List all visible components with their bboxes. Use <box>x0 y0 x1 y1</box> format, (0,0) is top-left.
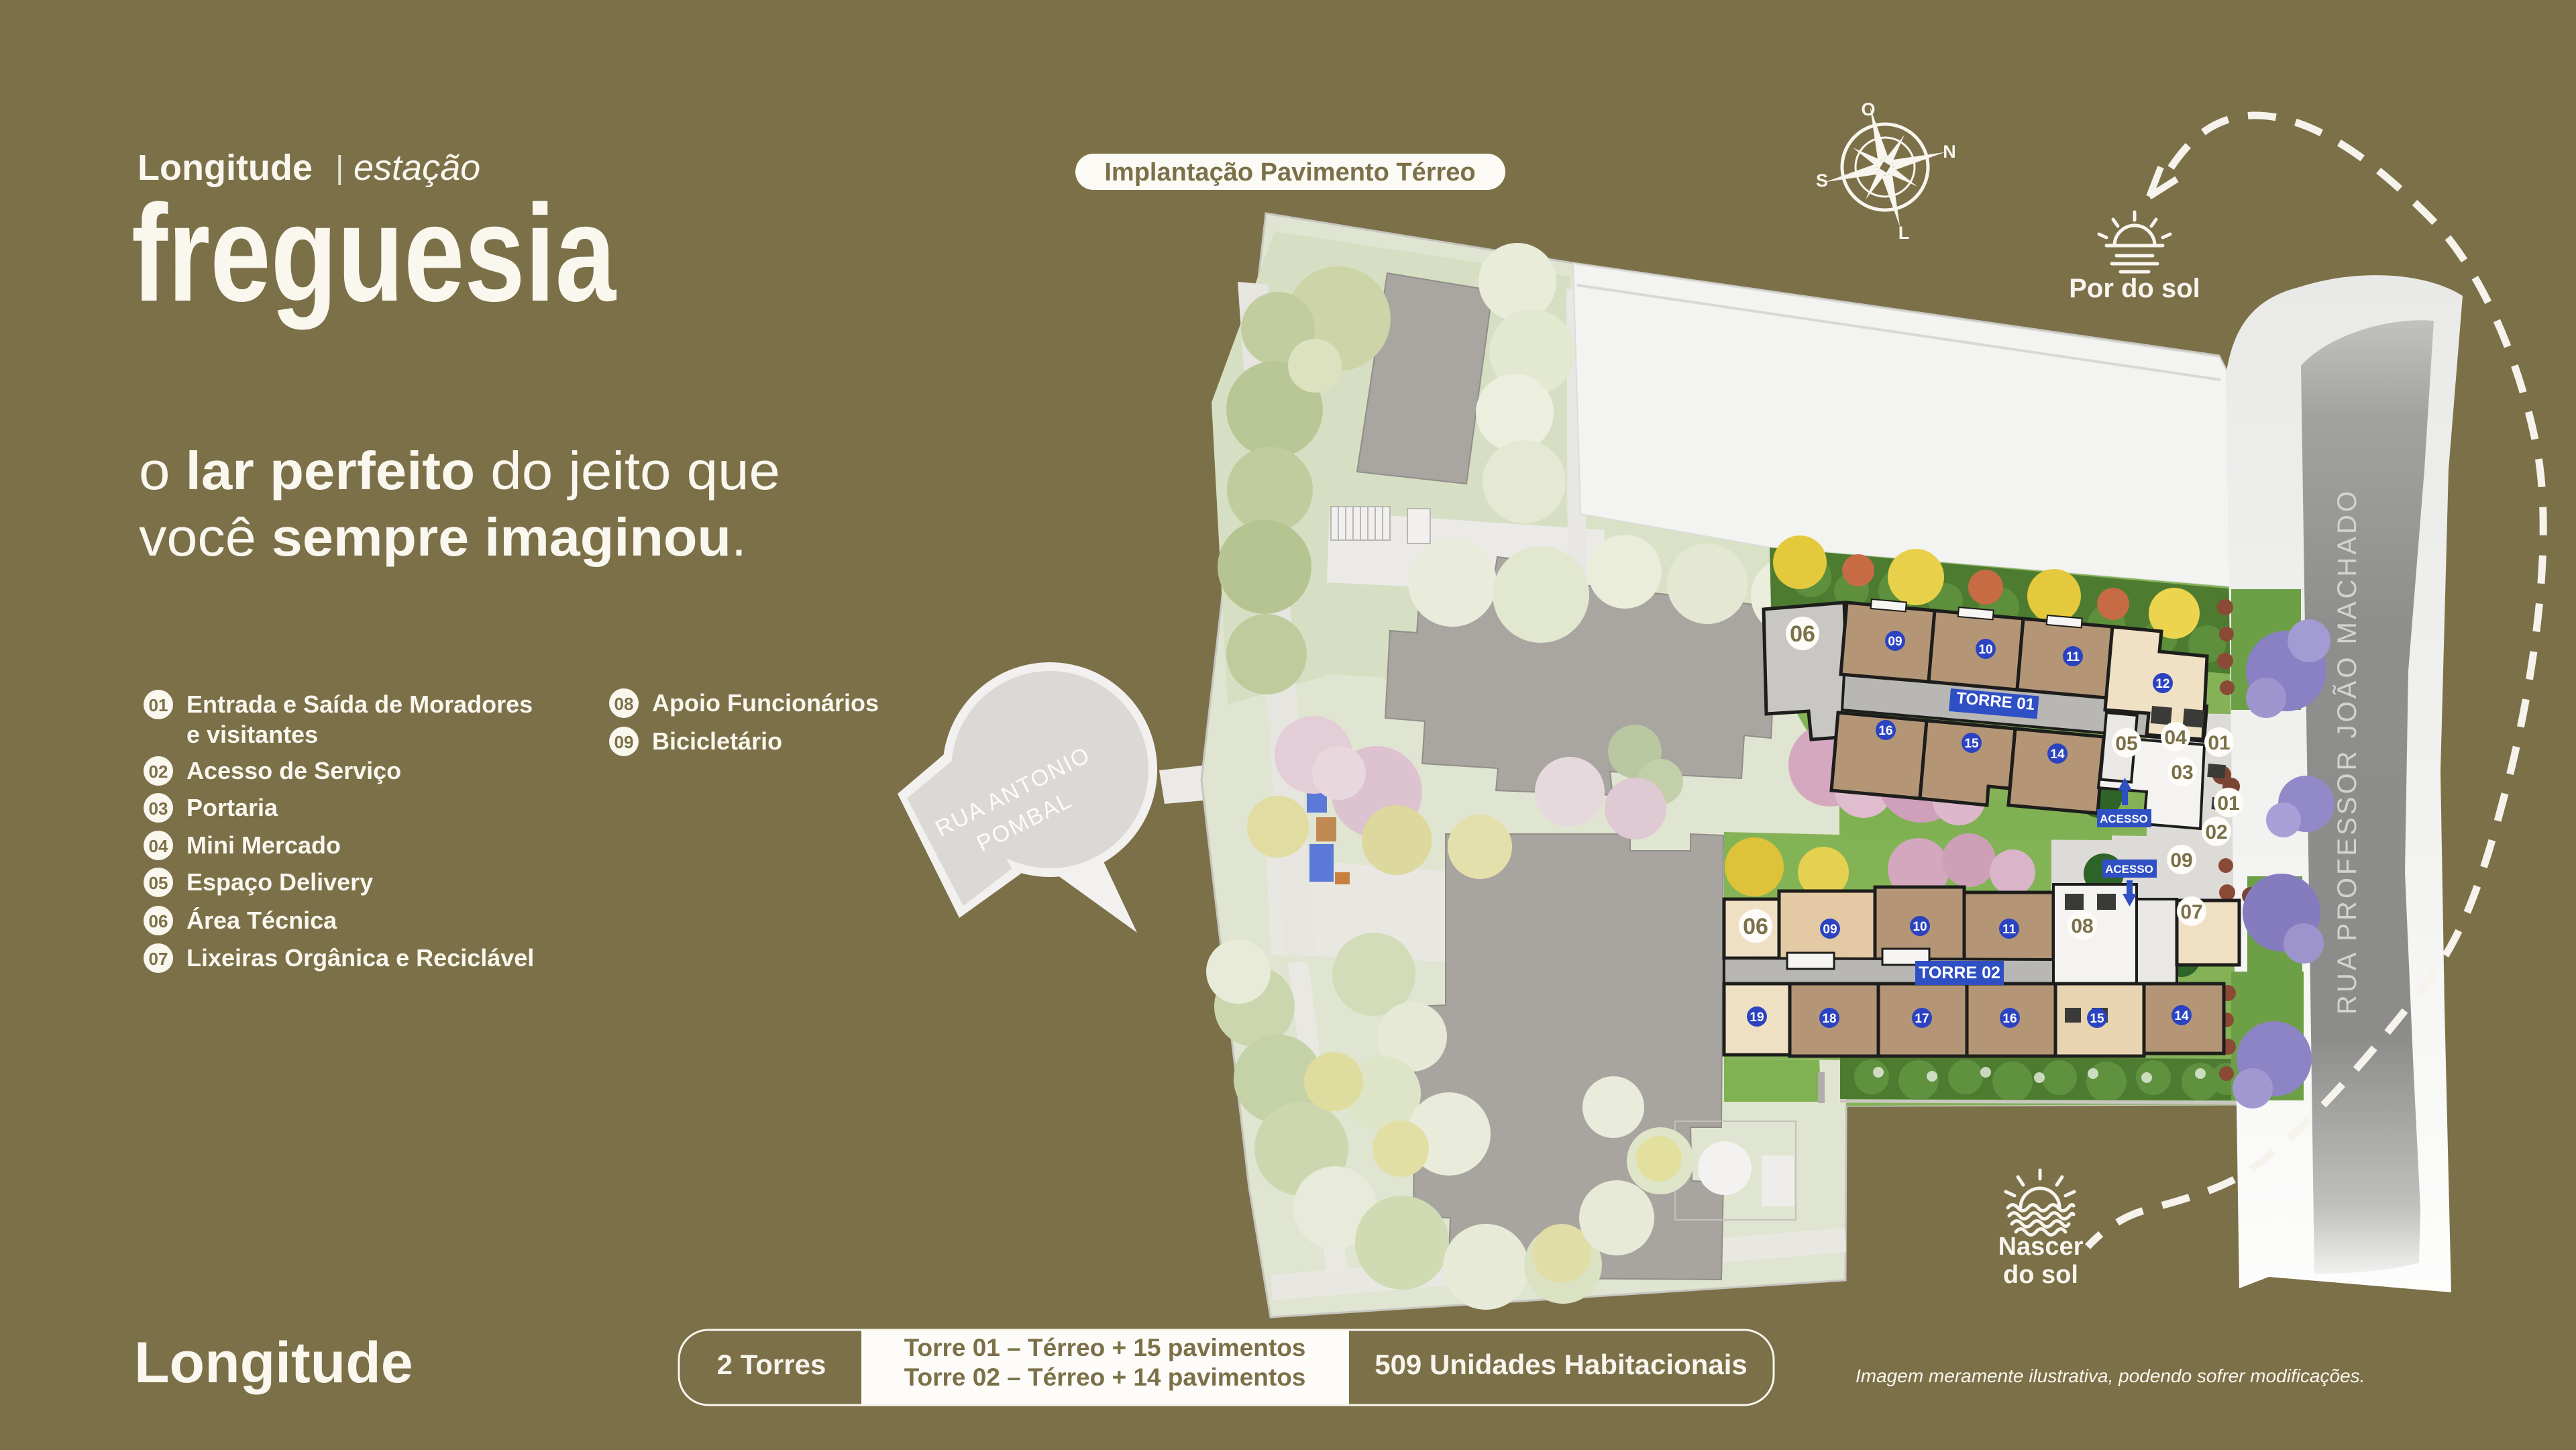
svg-text:10: 10 <box>1978 643 1992 657</box>
svg-text:07: 07 <box>149 949 168 969</box>
svg-text:16: 16 <box>1878 724 1892 738</box>
svg-text:03: 03 <box>2171 762 2193 784</box>
svg-text:06: 06 <box>1743 914 1768 939</box>
svg-text:01: 01 <box>149 695 168 715</box>
svg-text:você sempre imaginou.: você sempre imaginou. <box>139 507 747 567</box>
svg-text:Longitude: Longitude <box>134 1331 413 1395</box>
svg-text:o lar perfeito do jeito que: o lar perfeito do jeito que <box>139 441 780 501</box>
svg-text:11: 11 <box>2002 923 2017 937</box>
svg-text:Acesso de Serviço: Acesso de Serviço <box>186 757 401 784</box>
svg-text:11: 11 <box>2066 650 2080 664</box>
svg-text:01: 01 <box>2217 792 2239 815</box>
svg-text:04: 04 <box>2164 727 2187 749</box>
svg-text:Área Técnica: Área Técnica <box>186 907 337 934</box>
svg-text:05: 05 <box>2115 733 2137 755</box>
svg-text:01: 01 <box>2208 732 2230 754</box>
svg-text:09: 09 <box>614 732 634 752</box>
svg-text:06: 06 <box>149 911 168 931</box>
svg-text:08: 08 <box>614 694 634 714</box>
svg-text:L: L <box>1898 223 1910 243</box>
svg-text:ACESSO: ACESSO <box>2105 863 2153 876</box>
svg-text:2 Torres: 2 Torres <box>717 1349 826 1380</box>
svg-text:04: 04 <box>149 836 168 856</box>
svg-text:09: 09 <box>2170 849 2192 872</box>
svg-text:TORRE 02: TORRE 02 <box>1919 964 2000 982</box>
svg-text:07: 07 <box>2180 901 2202 923</box>
svg-text:12: 12 <box>2155 677 2169 691</box>
svg-text:ACESSO: ACESSO <box>2100 813 2148 825</box>
svg-text:08: 08 <box>2071 915 2093 937</box>
svg-text:16: 16 <box>2002 1012 2017 1026</box>
svg-text:18: 18 <box>1822 1012 1836 1026</box>
svg-text:06: 06 <box>1790 621 1815 647</box>
svg-text:Imagem meramente ilustrativa,: Imagem meramente ilustrativa, podendo so… <box>1856 1365 2365 1386</box>
svg-text:Bicicletário: Bicicletário <box>652 727 782 755</box>
svg-text:09: 09 <box>1823 923 1837 937</box>
svg-text:02: 02 <box>2205 821 2227 843</box>
svg-text:Torre 02 – Térreo + 14 pavimen: Torre 02 – Térreo + 14 pavimentos <box>904 1363 1306 1391</box>
svg-text:15: 15 <box>2090 1012 2104 1026</box>
svg-text:Apoio Funcionários: Apoio Funcionários <box>652 689 879 717</box>
svg-text:Mini Mercado: Mini Mercado <box>186 831 341 859</box>
svg-text:Lixeiras Orgânica e Reciclável: Lixeiras Orgânica e Reciclável <box>186 944 534 972</box>
svg-text:Implantação Pavimento Térreo: Implantação Pavimento Térreo <box>1104 158 1475 187</box>
svg-text:Espaço Delivery: Espaço Delivery <box>186 868 373 896</box>
svg-text:Por do sol: Por do sol <box>2069 274 2200 303</box>
svg-text:e visitantes: e visitantes <box>186 721 318 748</box>
svg-text:Portaria: Portaria <box>186 794 278 821</box>
svg-text:02: 02 <box>149 762 168 782</box>
svg-text:17: 17 <box>1915 1012 1929 1026</box>
svg-text:Nascer: Nascer <box>1998 1233 2084 1261</box>
svg-text:05: 05 <box>149 873 168 893</box>
svg-text:do sol: do sol <box>2003 1261 2078 1289</box>
svg-text:09: 09 <box>1888 635 1902 649</box>
svg-text:O: O <box>1861 99 1875 119</box>
svg-text:S: S <box>1816 170 1828 191</box>
svg-text:509 Unidades Habitacionais: 509 Unidades Habitacionais <box>1375 1349 1748 1380</box>
svg-text:03: 03 <box>149 798 168 819</box>
svg-text:freguesia: freguesia <box>131 176 617 330</box>
svg-text:19: 19 <box>1750 1011 1764 1025</box>
svg-text:14: 14 <box>2050 747 2065 762</box>
svg-text:14: 14 <box>2174 1009 2189 1023</box>
svg-text:RUA PROFESSOR JOÃO MACHADO: RUA PROFESSOR JOÃO MACHADO <box>2332 488 2362 1015</box>
svg-text:Torre 01 – Térreo + 15 pavimen: Torre 01 – Térreo + 15 pavimentos <box>904 1334 1306 1361</box>
svg-text:N: N <box>1943 142 1956 162</box>
svg-text:15: 15 <box>1964 737 1979 751</box>
svg-text:10: 10 <box>1913 920 1927 934</box>
svg-text:Entrada e Saída de Moradores: Entrada e Saída de Moradores <box>186 690 533 718</box>
